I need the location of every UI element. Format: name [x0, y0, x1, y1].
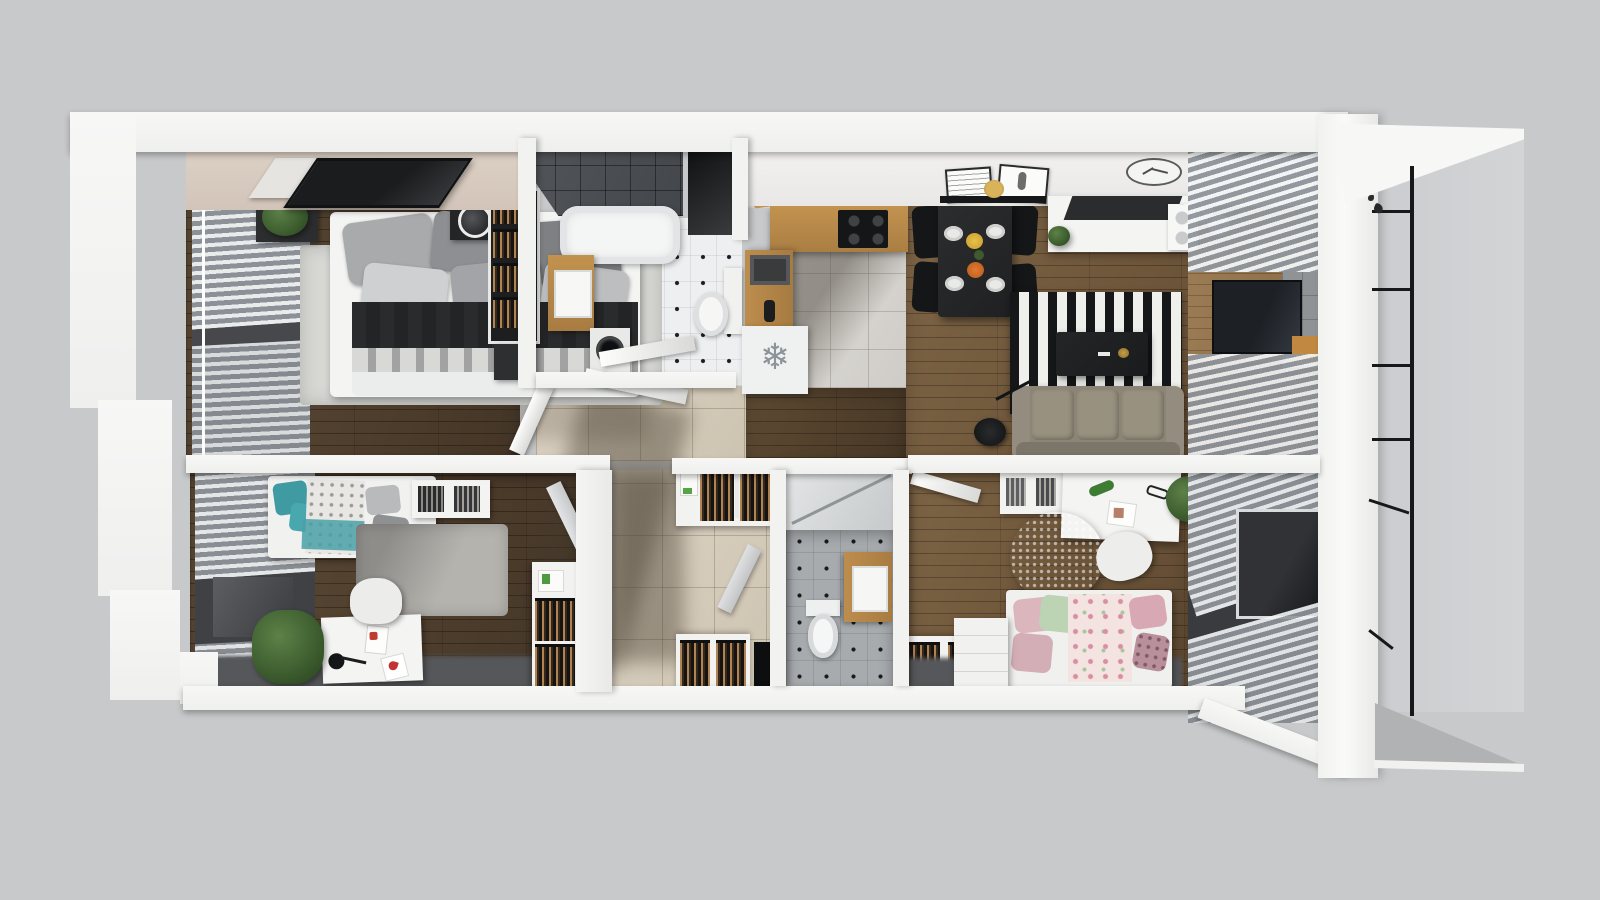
wc-sink [852, 566, 888, 612]
kids-desk [321, 614, 423, 683]
teen-round-rug [1010, 512, 1104, 602]
remote [1098, 352, 1110, 356]
sofa-cushion [1122, 390, 1164, 440]
gold-bowl [1118, 348, 1129, 358]
shower-glass-edge [791, 474, 891, 525]
railing-rung [1372, 438, 1412, 441]
wc-right-wall [893, 470, 909, 686]
plate [986, 277, 1005, 292]
hanging-clothes [700, 470, 734, 521]
hanging-clothes [740, 470, 774, 521]
closet-divider [735, 470, 739, 518]
wc-left-wall [770, 470, 786, 686]
blinds-slats [1188, 148, 1320, 272]
teen-dresser [954, 618, 1008, 690]
railing-rung [1372, 364, 1412, 367]
green-label [683, 488, 692, 494]
books [1036, 478, 1056, 506]
balcony-floor-triangle [1375, 703, 1517, 763]
hanging-clothes [535, 598, 575, 641]
living-blinds-upper [1188, 148, 1320, 272]
living-blinds-lower [1188, 354, 1320, 466]
gold-plate [984, 180, 1004, 198]
apartment-render-stage: ❄ [0, 0, 1600, 900]
window-frame [202, 205, 205, 455]
yellow-bowl [966, 233, 983, 249]
outer-wall-left-lower [110, 590, 180, 700]
sofa-cushion [1032, 390, 1074, 440]
plate [944, 226, 963, 241]
bathroom-left-wall [518, 138, 536, 388]
hall-closet-lower-left [676, 634, 750, 690]
blinds-slats [192, 339, 310, 455]
clock-hand [1152, 168, 1168, 174]
partition-wall-hall [672, 458, 912, 474]
teen-shelf [1000, 470, 1064, 514]
wall-clock [1126, 158, 1182, 186]
hanging-clothes [680, 640, 710, 687]
rose-pillow [1128, 594, 1168, 631]
red-mark-card [369, 632, 377, 640]
books [1006, 478, 1026, 506]
teen-bed [1006, 590, 1172, 688]
balcony-railing-post [1410, 166, 1414, 716]
partition-wall-living [908, 455, 1320, 473]
hanging-clothes [716, 640, 746, 687]
kids-wardrobe [532, 562, 578, 690]
accent-pillow [1131, 631, 1171, 672]
sideboard-back-panel [1064, 196, 1183, 220]
fridge-freezer: ❄ [742, 326, 808, 394]
bathroom-bottom-wall [536, 372, 736, 388]
sofa [1012, 386, 1184, 462]
bottle [764, 300, 775, 322]
partition-wall-bedrooms [186, 455, 610, 473]
wc-shower [786, 470, 893, 530]
gray-pillow [365, 484, 402, 515]
bathroom-right-wall [732, 138, 748, 240]
wc-toilet-bowl [808, 614, 838, 658]
sofa-cushion [1077, 390, 1119, 440]
garnish [974, 250, 984, 260]
gecko-toy [1088, 479, 1116, 498]
kids-palm-plant [252, 610, 324, 684]
plate [945, 276, 964, 291]
railing-rung [1372, 288, 1412, 291]
bathroom-toilet-bowl [694, 292, 728, 336]
outer-wall-left-upper [70, 112, 136, 408]
sideboard-plant [1048, 226, 1070, 246]
kids-chair [350, 578, 402, 624]
floral-blanket [1068, 594, 1132, 682]
snowflake-icon: ❄ [742, 340, 808, 376]
balcony-glass-wall [1376, 130, 1524, 712]
outer-wall-bottom [183, 686, 1245, 710]
blinds-slats [1188, 354, 1320, 466]
window-glass [1236, 509, 1320, 619]
paper-card [364, 625, 389, 655]
bathroom-toilet-tank [724, 268, 742, 334]
cooktop [838, 210, 888, 248]
pink-pillow [1010, 632, 1053, 673]
photo-card [1114, 508, 1124, 518]
books [418, 486, 444, 512]
outer-wall-left-mid [98, 400, 172, 596]
media-tv-screen [1212, 280, 1302, 354]
kitchen-sink [750, 255, 790, 285]
green-label [542, 574, 550, 584]
orange-dish [967, 262, 984, 278]
floor-lamp-shade [974, 418, 1006, 446]
books [454, 486, 480, 512]
outer-wall-right-column [1318, 114, 1378, 778]
plate [986, 224, 1005, 239]
bath-sink [554, 270, 592, 318]
outer-wall-top [70, 112, 1348, 152]
balcony-decor-mark [1368, 195, 1374, 201]
kitchen-floor-shadow [792, 248, 906, 388]
hallway-shadow-2 [614, 472, 684, 662]
kitchen-front-wood-floor [744, 386, 906, 458]
bedroom-window-blinds [192, 205, 310, 455]
dining-table [938, 203, 1012, 317]
kids-room-right-wall [576, 470, 612, 692]
kids-bookshelf [412, 480, 490, 518]
clock-hand [1142, 167, 1153, 175]
hanging-clothes [535, 644, 575, 687]
